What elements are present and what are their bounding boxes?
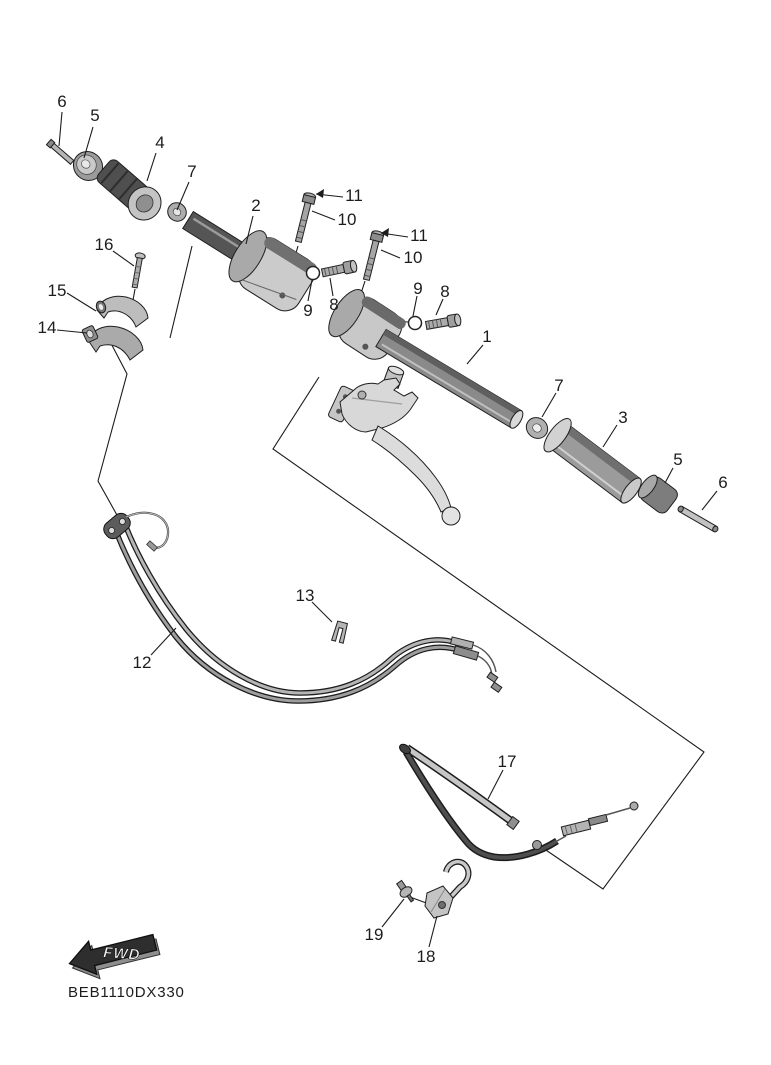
callout-6-right: 6 [718, 473, 727, 492]
exploded-parts-diagram: 6 5 4 7 2 11 10 11 10 16 15 14 9 8 9 8 1… [0, 0, 771, 1065]
right-bar-end-bolt [677, 505, 719, 533]
callout-9-left: 9 [303, 301, 312, 320]
callout-2: 2 [251, 196, 260, 215]
callout-12: 12 [133, 653, 152, 672]
callout-15: 15 [48, 281, 67, 300]
lever-blade [372, 426, 451, 512]
drawing-part-code: BEB1110DX330 [68, 984, 185, 1001]
callout-7-right: 7 [554, 376, 563, 395]
callout-9-right: 9 [413, 279, 422, 298]
throttle-grip-tube [539, 414, 648, 510]
callout-4: 4 [155, 133, 164, 152]
bolt-8-left [321, 260, 358, 279]
clamp-bolt-16 [130, 252, 146, 288]
cable-clip [332, 621, 349, 643]
bracket-bolt-19 [394, 878, 418, 904]
callout-8-left: 8 [329, 295, 338, 314]
fwd-arrow-label: FWD [103, 944, 141, 964]
washer-9-left [307, 267, 320, 280]
parts-diagram-page: 6 5 4 7 2 11 10 11 10 16 15 14 9 8 9 8 1… [0, 0, 771, 1065]
callout-labels: 6 5 4 7 2 11 10 11 10 16 15 14 9 8 9 8 1… [38, 92, 728, 966]
callout-10-left: 10 [338, 210, 357, 229]
clamp-shell-lower [82, 325, 143, 360]
callout-7-left: 7 [187, 162, 196, 181]
cable-ball-end [630, 802, 638, 810]
callout-14: 14 [38, 318, 57, 337]
callout-6-left: 6 [57, 92, 66, 111]
clamp-bolt-10-right [361, 230, 385, 281]
left-grip-collar [164, 199, 190, 225]
left-grip [93, 155, 168, 227]
callout-8-right: 8 [440, 282, 449, 301]
left-handlebar [173, 195, 321, 317]
callout-18: 18 [417, 947, 436, 966]
lever-pivot-screw [358, 391, 366, 399]
callout-11-right: 11 [410, 226, 428, 245]
callout-5-right: 5 [673, 450, 682, 469]
handlebar2-clamp-axis-line [170, 246, 192, 338]
callout-13: 13 [296, 586, 315, 605]
clamp-bolt-10-left [293, 192, 317, 243]
cable-adjuster-nut [533, 841, 542, 850]
lever-perch-body [340, 378, 418, 432]
callout-11-left: 11 [345, 186, 363, 205]
callout-16: 16 [95, 235, 114, 254]
clutch-cable-assembly [100, 510, 501, 701]
bolt-8-right [425, 313, 462, 331]
lever-ball-end [442, 507, 460, 525]
callout-1: 1 [482, 327, 491, 346]
callout-17: 17 [498, 752, 517, 771]
callout-3: 3 [618, 408, 627, 427]
left-bar-end-bolt [46, 139, 74, 165]
clamp-shell-upper [95, 296, 148, 327]
callout-10-right: 10 [404, 248, 423, 267]
fwd-direction-arrow: FWD [65, 925, 162, 985]
callout-5-left: 5 [90, 106, 99, 125]
cable-guide-bracket [425, 862, 468, 918]
right-bar-end-cap [635, 472, 681, 516]
washer-9-right [409, 317, 422, 330]
callout-19: 19 [365, 925, 384, 944]
throttle-cable-assembly [398, 742, 638, 857]
